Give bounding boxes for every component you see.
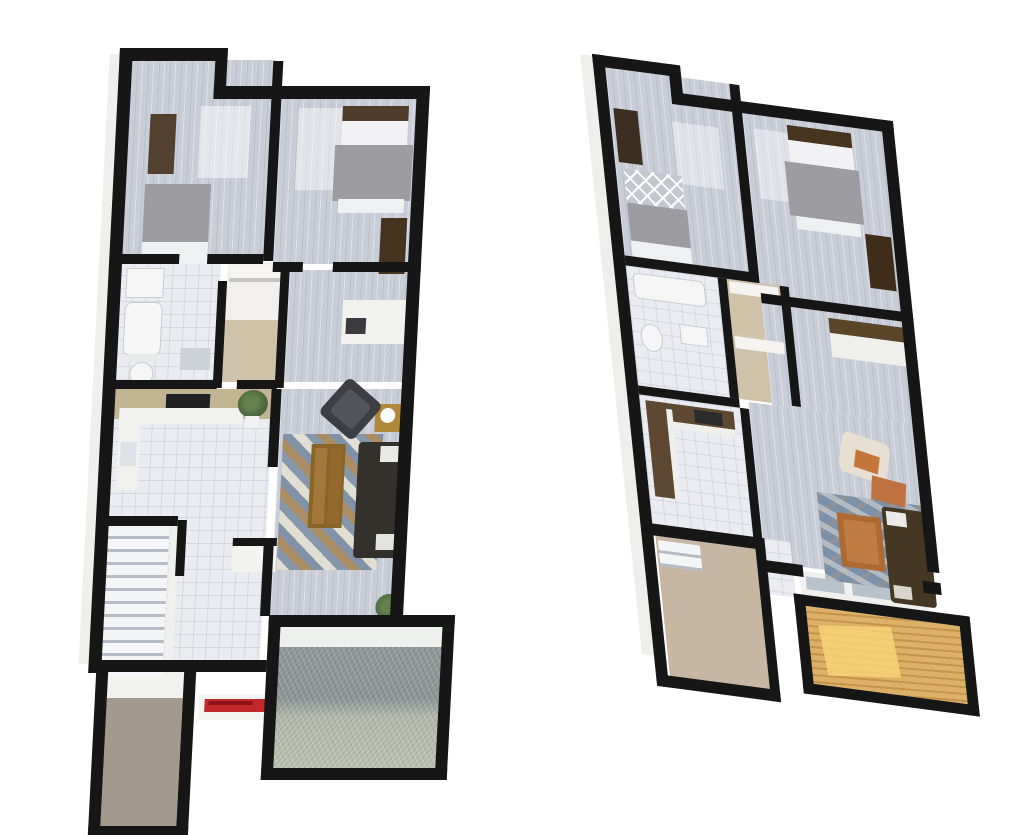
bed-blanket (142, 184, 211, 246)
wall (207, 254, 264, 264)
plant-pot (245, 416, 260, 428)
staircase (100, 526, 170, 676)
annex-floor (100, 698, 183, 828)
toilet-tank (128, 354, 156, 362)
floor-plan-scene (0, 0, 1024, 835)
bath-vanity (125, 268, 165, 298)
desk-monitor (345, 318, 366, 334)
wall (268, 615, 455, 627)
wall (121, 254, 180, 264)
window-light-patch (197, 106, 251, 178)
sofa-pillow (886, 511, 907, 528)
wall (213, 86, 430, 99)
bath-mat (180, 348, 211, 370)
wall (237, 380, 277, 389)
wall (115, 380, 217, 389)
wall (119, 48, 228, 61)
coffee-table-top (843, 519, 879, 565)
bathtub (122, 302, 163, 356)
bed-headboard (342, 106, 409, 121)
sunlight-patch (818, 625, 901, 677)
patio-stone-floor (273, 647, 441, 768)
bed-sheet (338, 199, 405, 213)
shelf-shadow (229, 278, 280, 282)
wall (106, 516, 179, 526)
wall (88, 826, 189, 835)
wall (261, 768, 448, 780)
floor-plan-left (66, 48, 486, 835)
bed-blanket (332, 145, 413, 201)
wall (333, 262, 422, 272)
wall (922, 581, 941, 595)
closet-floor (222, 320, 280, 382)
bed-pillows (341, 121, 408, 145)
patio-step (279, 627, 442, 647)
floor-plan-right (578, 52, 1005, 750)
banister-cap (233, 538, 277, 546)
front-door-shadow (208, 701, 252, 705)
wall (96, 660, 197, 672)
sink (679, 324, 709, 348)
sofa-pillow (893, 585, 912, 600)
dresser (148, 114, 177, 174)
kitchen-sink (120, 442, 137, 466)
